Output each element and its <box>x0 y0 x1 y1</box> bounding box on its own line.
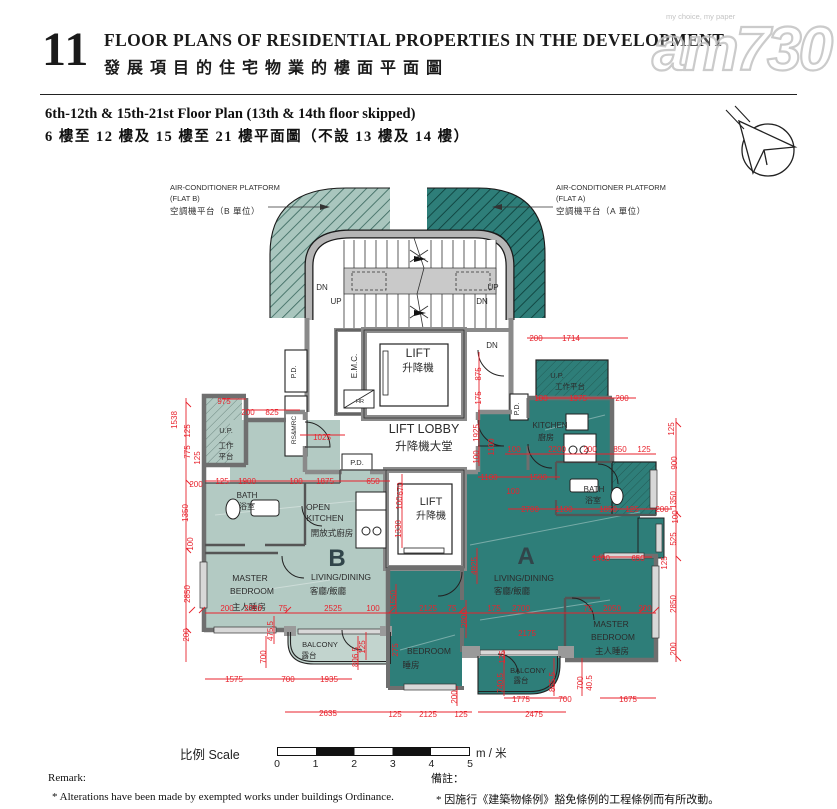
dimension-label: 2175 <box>518 629 536 638</box>
room-label: 升降機大堂 <box>395 439 453 453</box>
staircase <box>309 234 510 328</box>
dimension-label: 2050 <box>244 604 262 613</box>
room-label: 睡房 <box>402 660 419 670</box>
dimension-label: 125 <box>193 451 202 465</box>
dimension-label: 125 <box>388 710 402 719</box>
dimension-label: 4925 <box>470 557 479 575</box>
dimension-label: 1775 <box>512 695 530 704</box>
room-label: MASTER <box>232 573 267 583</box>
dimension-label: 75 <box>448 604 457 613</box>
dimension-label: 100 <box>289 477 303 486</box>
dimension-label: 2200 <box>548 445 566 454</box>
dimension-label: 1538 <box>170 411 179 429</box>
room-label: A <box>517 543 534 570</box>
room-label: 廚房 <box>538 432 554 442</box>
dimension-label: 200 <box>182 628 191 642</box>
dimension-label: 100 <box>506 487 520 496</box>
room-label: DN <box>316 283 328 292</box>
dimension-label: 650 <box>631 554 645 563</box>
dimension-label: 200 <box>655 505 669 514</box>
dimension-label: 1025 <box>313 433 331 442</box>
room-label: BATH <box>584 485 605 494</box>
dimension-label: 1900 <box>238 477 256 486</box>
room-label: 浴室 <box>585 495 601 505</box>
dimension-label: 1330 <box>394 520 403 538</box>
dimension-label: 175 <box>474 391 483 405</box>
dimension-label: 2525 <box>324 604 342 613</box>
dimension-label: 125 <box>454 710 468 719</box>
room-label: 升降機 <box>402 361 434 374</box>
room-label: KITCHEN <box>532 421 567 430</box>
dimension-label: 900 <box>670 456 679 470</box>
dimension-label: 125 <box>358 640 367 654</box>
dimension-label: 825 <box>265 408 279 417</box>
dimension-label: 2125 <box>419 710 437 719</box>
dimension-label: 275 <box>391 643 400 657</box>
dimension-label: 700 <box>281 675 295 684</box>
dimension-label: 200 <box>615 394 629 403</box>
room-label: 露台 <box>302 650 317 660</box>
dimension-label: 1350 <box>181 504 190 522</box>
dimension-label: 200 <box>529 334 543 343</box>
room-label: 主人睡房 <box>595 646 629 656</box>
dimension-label: 125 <box>660 556 669 570</box>
dimension-label: 2635 <box>319 709 337 718</box>
dimension-label: 775 <box>183 445 192 459</box>
dimension-label: 100 <box>507 445 521 454</box>
scale-tick: 4 <box>428 758 434 770</box>
dimension-label: 700 <box>558 695 572 704</box>
dimension-label: 125 <box>215 477 229 486</box>
dimension-label: 1100 <box>555 505 573 514</box>
dimension-label: 670 <box>396 482 405 496</box>
dimension-label: 200 <box>669 642 678 656</box>
room-label: BEDROOM <box>407 646 451 656</box>
dimension-label: 1675 <box>619 695 637 704</box>
remark-title-zh: 備註： <box>431 770 464 786</box>
dimension-label: 100 <box>186 537 195 551</box>
room-label: P.D. <box>350 458 364 467</box>
dimension-label: 865.5 <box>548 671 557 692</box>
room-label: BALCONY <box>302 640 338 649</box>
dimension-label: 125 <box>667 422 676 436</box>
room-label: 客廳/飯廳 <box>310 586 347 596</box>
dimension-label: 100 <box>395 496 404 510</box>
dimension-label: 2700 <box>512 604 530 613</box>
room-label: U.P. <box>219 426 233 435</box>
room-label: RS&MRC <box>291 416 298 444</box>
dimension-label: 75 <box>584 604 593 613</box>
dimension-label: 1925 <box>472 424 481 442</box>
room-label: BEDROOM <box>591 632 635 642</box>
dimension-label: 125 <box>637 445 651 454</box>
dimension-label: 2050 <box>603 604 621 613</box>
dimension-label: 1350 <box>669 491 678 509</box>
dimension-label: 200 <box>450 690 459 704</box>
dimension-label: 75 <box>279 604 288 613</box>
dimension-label: 125 <box>183 424 192 438</box>
remark-text-zh: * 因施行《建築物條例》豁免條例的工程條例而有所改動。 <box>436 791 719 807</box>
room-label: 開放式廚房 <box>311 528 354 538</box>
scale-label: 比例 Scale <box>180 744 240 763</box>
room-label: 工作平台 <box>555 381 585 391</box>
dimension-label: 100 <box>534 394 548 403</box>
room-label: LIFT <box>420 496 443 508</box>
dimension-label: 475.5 <box>266 620 275 641</box>
remark-text-en: * Alterations have been made by exempted… <box>52 791 394 803</box>
room-label: 露台 <box>514 675 529 685</box>
dimension-label: 1100 <box>480 473 498 482</box>
dimension-label: 700 <box>259 650 268 664</box>
room-label: LIFT <box>406 346 431 360</box>
room-label: UP <box>330 297 341 306</box>
room-label: B <box>328 545 345 572</box>
room-label: 升降機 <box>416 509 446 522</box>
dimension-label: 1975 <box>569 394 587 403</box>
dimension-label: 175 <box>487 604 501 613</box>
dimension-label: 850 <box>613 445 627 454</box>
remark-title-en: Remark: <box>48 772 86 784</box>
dimension-label: 40.5 <box>585 675 594 691</box>
dimension-label: 125 <box>498 650 507 664</box>
scale-bar <box>277 747 470 756</box>
room-label: DN <box>476 297 488 306</box>
dimension-label: 200 <box>220 604 234 613</box>
room-label: OPEN <box>306 502 330 512</box>
room-label: LIFT LOBBY <box>389 422 460 436</box>
dimension-label: 200 <box>189 480 203 489</box>
room-label: BATH <box>237 491 258 500</box>
dimension-label: 100 <box>366 604 380 613</box>
brochure-page: 11 FLOOR PLANS OF RESIDENTIAL PROPERTIES… <box>0 0 837 809</box>
dimension-label: 1850 <box>599 505 617 514</box>
north-arrow-icon <box>726 106 795 176</box>
dimension-label: 740.5 <box>496 672 505 693</box>
dimension-label: 525 <box>669 532 678 546</box>
room-label: KITCHEN <box>306 513 343 523</box>
dimension-label: 100 <box>472 450 481 464</box>
room-label: E.M.C. <box>350 354 359 378</box>
room-label: BEDROOM <box>230 586 274 596</box>
scale-unit: m / 米 <box>476 745 507 761</box>
room-label: LIVING/DINING <box>311 572 371 582</box>
scale-tick: 3 <box>390 758 396 770</box>
dimension-label: 975 <box>217 397 231 406</box>
room-label: P.D. <box>514 403 521 416</box>
dimension-label: 2800 <box>460 610 469 628</box>
room-label: U.P. <box>550 371 564 380</box>
room-label: UP <box>487 283 498 292</box>
scale-tick: 5 <box>467 758 473 770</box>
dimension-label: 1500 <box>529 473 547 482</box>
dimension-label: 200 <box>241 408 255 417</box>
dimension-label: 1550 <box>389 590 398 608</box>
scale-tick: 0 <box>274 758 280 770</box>
dimension-label: 1575 <box>225 675 243 684</box>
scale-tick: 1 <box>313 758 319 770</box>
dimension-label: 200 <box>638 604 652 613</box>
dimension-label: 1400 <box>592 554 610 563</box>
room-label: MASTER <box>593 619 628 629</box>
room-label: BALCONY <box>510 666 546 675</box>
room-label: P.D. <box>291 366 298 379</box>
room-label: HR <box>356 399 364 405</box>
scale-tick: 2 <box>351 758 357 770</box>
floor-plan: LIFT升降機LIFT LOBBY升降機大堂LIFT升降機E.M.C.P.D.R… <box>0 0 837 809</box>
dimension-label: 700 <box>576 676 585 690</box>
room-label: 客廳/飯廳 <box>494 586 531 596</box>
dimension-label: 2850 <box>669 595 678 613</box>
dimension-label: 1714 <box>562 334 580 343</box>
platform-gap <box>390 183 427 232</box>
room-label: 平台 <box>219 451 234 461</box>
room-label: DN <box>486 341 498 350</box>
room-label: LIVING/DINING <box>494 573 554 583</box>
dimension-label: 875 <box>474 367 483 381</box>
dimension-label: 100 <box>671 510 680 524</box>
dimension-label: 1100 <box>487 438 496 456</box>
room-label: 工作 <box>219 440 234 450</box>
dimension-label: 200 <box>583 445 597 454</box>
dimension-label: 1875 <box>316 477 334 486</box>
dimension-label: 650 <box>366 477 380 486</box>
dimension-label: 2475 <box>525 710 543 719</box>
room-label: 浴室 <box>239 501 255 511</box>
dimension-label: 1935 <box>320 675 338 684</box>
dimension-label: 2700 <box>521 505 539 514</box>
dimension-label: 125 <box>625 505 639 514</box>
dimension-label: 2850 <box>183 585 192 603</box>
dimension-label: 2125 <box>419 604 437 613</box>
